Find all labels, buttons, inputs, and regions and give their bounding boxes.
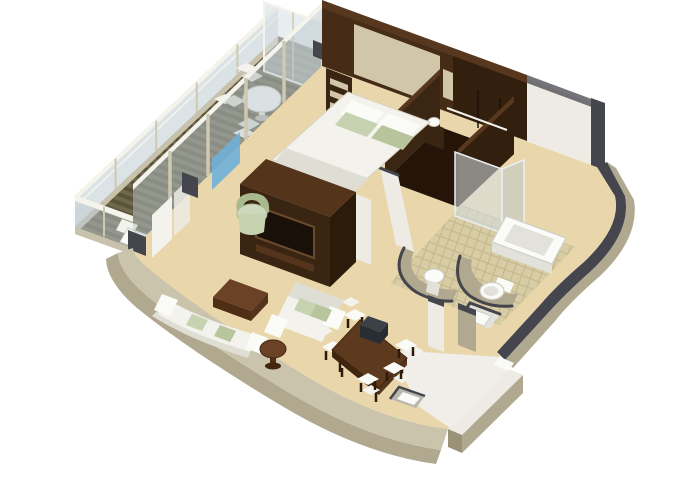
tub-chair (236, 193, 269, 235)
vanity-sink (424, 269, 444, 283)
headboard-niche (443, 69, 453, 101)
floor-plan-illustration (0, 0, 680, 486)
tub-chair-front (238, 214, 266, 235)
side-table-base (265, 363, 281, 370)
toilet-seat (484, 286, 499, 296)
side-table-top (260, 340, 286, 358)
console-end-panel (356, 194, 371, 265)
floor-plan-canvas (0, 0, 680, 486)
east-corner-cap (591, 98, 605, 170)
dining-wall-stub (428, 300, 444, 352)
